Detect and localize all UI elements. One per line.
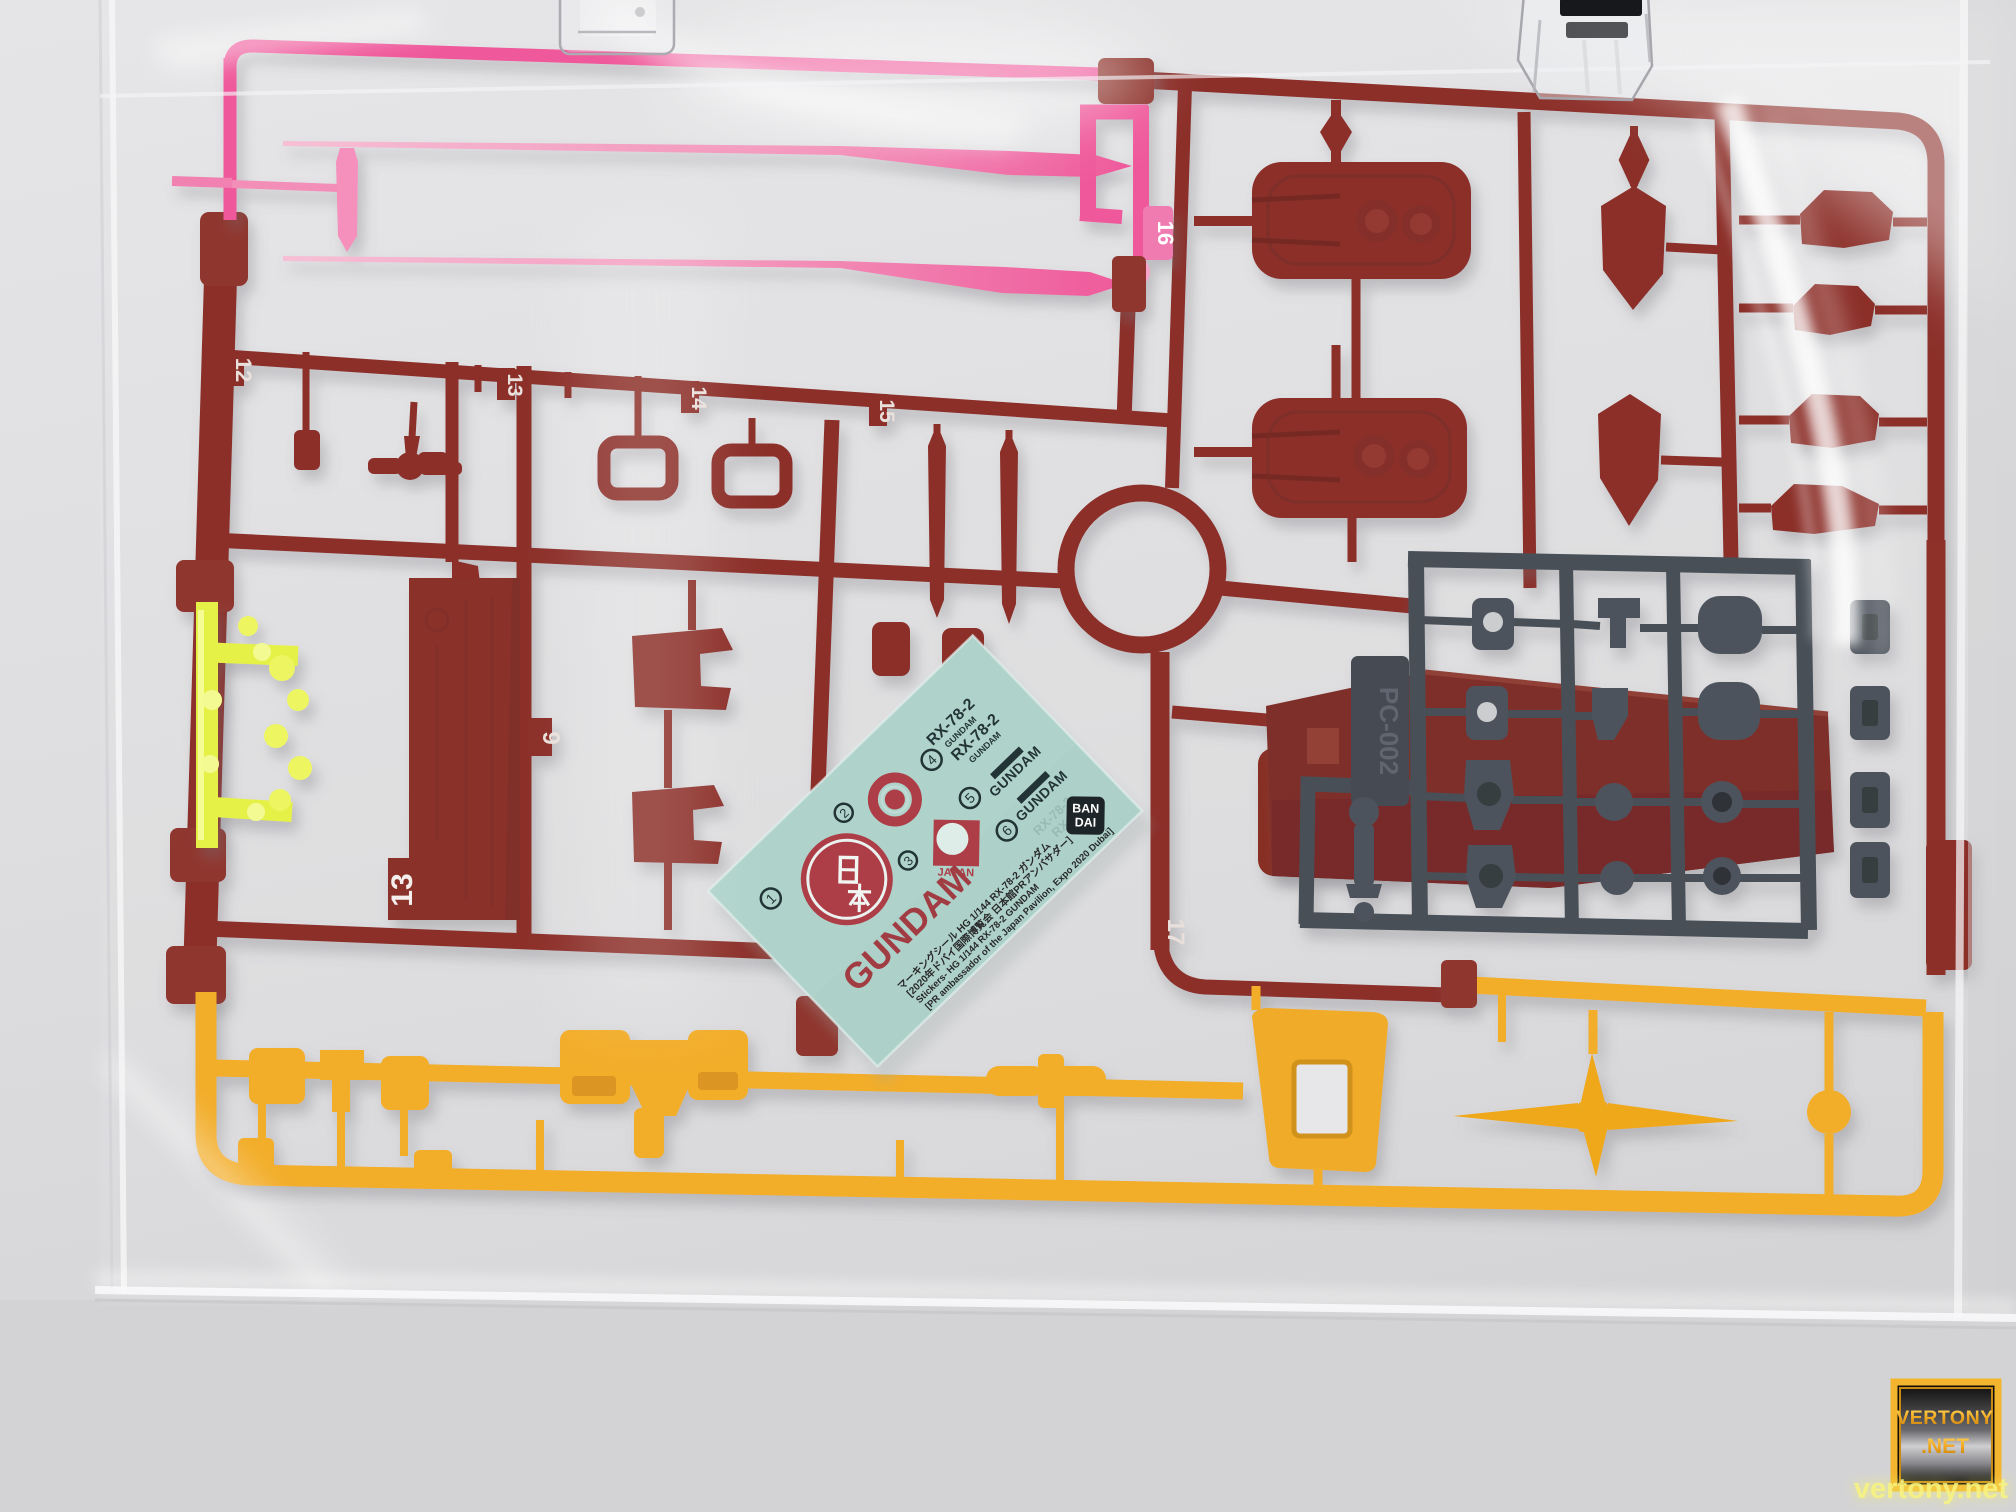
svg-text:vertony.net: vertony.net [1854, 1473, 2009, 1505]
svg-text:.NET: .NET [1921, 1435, 1969, 1458]
svg-text:VERTONY: VERTONY [1896, 1407, 1993, 1429]
